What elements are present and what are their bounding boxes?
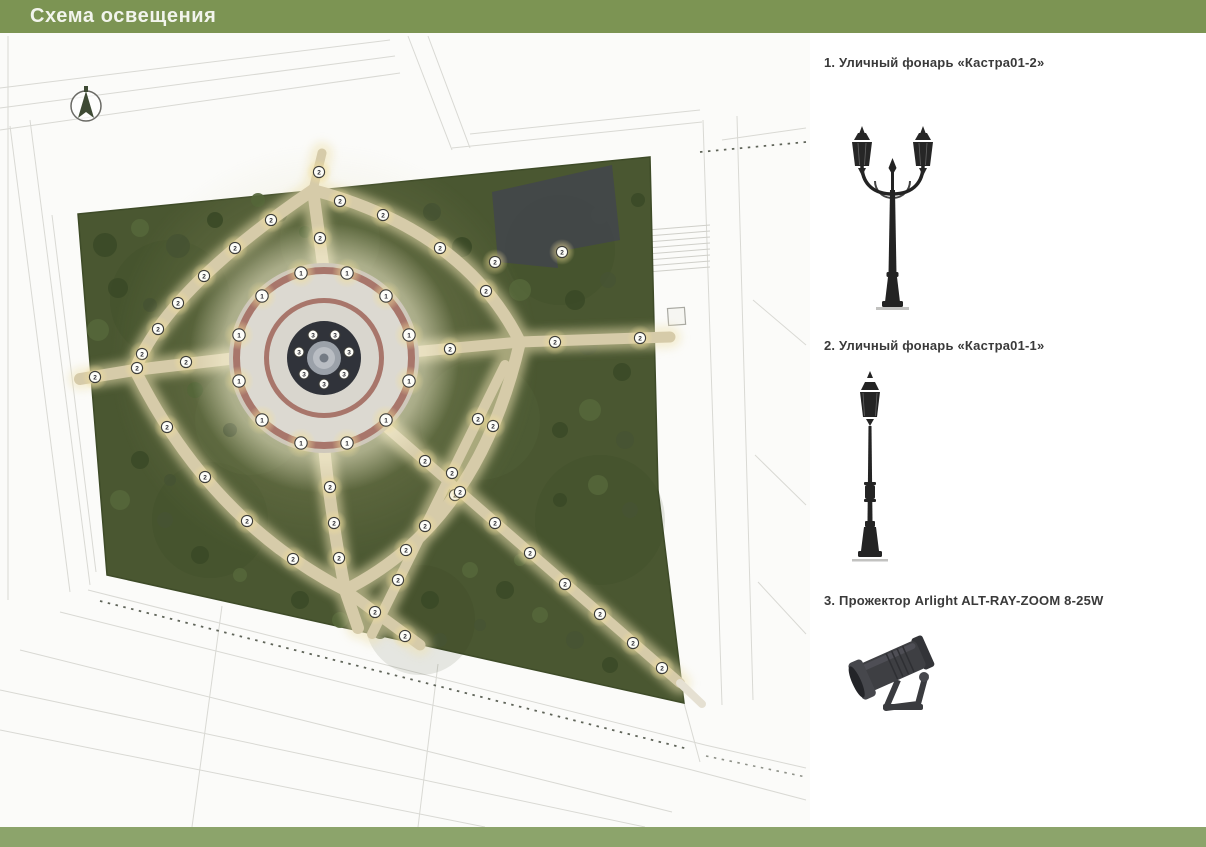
svg-text:1: 1	[299, 440, 303, 447]
lamp-marker-type1: 1	[332, 428, 362, 458]
svg-text:2: 2	[598, 611, 602, 618]
lamp-marker-type2: 2	[542, 329, 568, 355]
svg-text:2: 2	[338, 198, 342, 205]
lamp-marker-type3: 3	[330, 330, 340, 340]
lamp-marker-type2: 2	[385, 567, 411, 593]
svg-text:2: 2	[403, 633, 407, 640]
lamp-marker-type2: 2	[517, 540, 543, 566]
lamp-marker-type2: 2	[465, 406, 491, 432]
lamp-marker-type2: 2	[412, 448, 438, 474]
svg-text:1: 1	[345, 270, 349, 277]
single-street-lamp-icon	[840, 365, 1194, 575]
svg-text:2: 2	[631, 640, 635, 647]
lamp-marker-type2: 2	[124, 355, 150, 381]
lamp-marker-type3: 3	[308, 330, 318, 340]
lamp-marker-type1: 1	[371, 405, 401, 435]
lamp-marker-type2: 2	[482, 510, 508, 536]
tree	[474, 619, 486, 631]
svg-text:3: 3	[333, 332, 337, 339]
svg-text:2: 2	[476, 416, 480, 423]
tree	[131, 219, 149, 237]
lamp-marker-type2: 2	[552, 571, 578, 597]
svg-text:2: 2	[493, 259, 497, 266]
legend-item-2: 2. Уличный фонарь «Кастра01-1»	[824, 338, 1194, 575]
lamp-marker-type2: 2	[362, 599, 388, 625]
svg-text:1: 1	[237, 378, 241, 385]
lamp-marker-type2: 2	[173, 349, 199, 375]
svg-text:2: 2	[423, 458, 427, 465]
svg-text:3: 3	[322, 381, 326, 388]
legend-item-3: 3. Прожектор Arlight ALT-RAY-ZOOM 8-25W	[824, 593, 1194, 720]
svg-text:3: 3	[347, 349, 351, 356]
svg-text:2: 2	[184, 359, 188, 366]
lamp-marker-type2: 2	[427, 235, 453, 261]
lamp-marker-type2: 2	[620, 630, 646, 656]
tree	[565, 290, 585, 310]
tree	[233, 568, 247, 582]
svg-text:2: 2	[233, 245, 237, 252]
tree	[622, 502, 638, 518]
tree	[600, 272, 616, 288]
tree	[602, 657, 618, 673]
page-footer	[0, 827, 1206, 847]
lamp-marker-type2: 2	[370, 202, 396, 228]
svg-text:2: 2	[491, 423, 495, 430]
lamp-marker-type2: 2	[393, 537, 419, 563]
tree	[108, 278, 128, 298]
tree	[166, 234, 190, 258]
tree	[423, 203, 441, 221]
lamp-marker-type1: 1	[224, 320, 254, 350]
svg-text:2: 2	[203, 474, 207, 481]
lamp-marker-type2: 2	[549, 239, 575, 265]
site-plan-map: 2222222222222222222222222222222222222222…	[0, 33, 810, 827]
svg-text:2: 2	[269, 217, 273, 224]
tree	[87, 319, 109, 341]
svg-text:2: 2	[93, 374, 97, 381]
tree	[552, 422, 568, 438]
lamp-marker-type2: 2	[327, 188, 353, 214]
tree	[433, 633, 447, 647]
svg-text:3: 3	[297, 349, 301, 356]
lamp-marker-type2: 2	[307, 225, 333, 251]
svg-text:2: 2	[332, 520, 336, 527]
page-title: Схема освещения	[30, 5, 216, 28]
svg-text:2: 2	[560, 249, 564, 256]
svg-text:2: 2	[245, 518, 249, 525]
tree	[164, 474, 176, 486]
tree	[509, 279, 531, 301]
lamp-marker-type2: 2	[192, 464, 218, 490]
tree	[462, 562, 478, 578]
svg-text:2: 2	[493, 520, 497, 527]
svg-text:2: 2	[317, 169, 321, 176]
lamp-marker-type2: 2	[154, 414, 180, 440]
tree	[291, 591, 309, 609]
lamp-marker-type1: 1	[286, 258, 316, 288]
svg-text:2: 2	[563, 581, 567, 588]
lamp-marker-type1: 1	[286, 428, 316, 458]
site-plan-svg: 2222222222222222222222222222222222222222…	[0, 33, 810, 827]
svg-text:2: 2	[423, 523, 427, 530]
svg-text:2: 2	[484, 288, 488, 295]
svg-text:2: 2	[328, 484, 332, 491]
lamp-marker-type2: 2	[280, 546, 306, 572]
svg-text:2: 2	[638, 335, 642, 342]
utility-square	[667, 307, 685, 325]
svg-text:2: 2	[135, 365, 139, 372]
lamp-marker-type2: 2	[392, 623, 418, 649]
svg-text:1: 1	[237, 332, 241, 339]
lamp-marker-type2: 2	[317, 474, 343, 500]
tree	[588, 475, 608, 495]
svg-text:2: 2	[156, 326, 160, 333]
tree	[251, 193, 265, 207]
svg-text:2: 2	[660, 665, 664, 672]
lamp-marker-type3: 3	[344, 347, 354, 357]
lighting-scheme-slide: Схема освещения	[0, 0, 1206, 847]
svg-text:1: 1	[384, 293, 388, 300]
svg-text:2: 2	[438, 245, 442, 252]
svg-text:1: 1	[384, 417, 388, 424]
lamp-marker-type2: 2	[258, 207, 284, 233]
tree	[131, 451, 149, 469]
lamp-marker-type2: 2	[191, 263, 217, 289]
legend-item-label: 3. Прожектор Arlight ALT-RAY-ZOOM 8-25W	[824, 593, 1194, 608]
tree	[191, 546, 209, 564]
svg-text:1: 1	[260, 417, 264, 424]
lamp-marker-type1: 1	[394, 320, 424, 350]
legend-item-1: 1. Уличный фонарь «Кастра01-2»	[824, 55, 1194, 317]
svg-text:1: 1	[407, 378, 411, 385]
svg-text:1: 1	[260, 293, 264, 300]
svg-text:2: 2	[176, 300, 180, 307]
lamp-marker-type2: 2	[473, 278, 499, 304]
lamp-marker-type2: 2	[587, 601, 613, 627]
lamp-marker-type1: 1	[247, 405, 277, 435]
svg-text:3: 3	[302, 371, 306, 378]
svg-text:3: 3	[342, 371, 346, 378]
lamp-marker-type2: 2	[145, 316, 171, 342]
lamp-marker-type1: 1	[394, 366, 424, 396]
lamp-marker-type2: 2	[306, 159, 332, 185]
svg-text:2: 2	[450, 470, 454, 477]
tree	[143, 298, 157, 312]
tree	[93, 233, 117, 257]
tree	[616, 431, 634, 449]
tree	[421, 591, 439, 609]
lamp-marker-type2: 2	[234, 508, 260, 534]
lamp-marker-type2: 2	[222, 235, 248, 261]
legend-item-label: 1. Уличный фонарь «Кастра01-2»	[824, 55, 1194, 70]
legend-panel: 1. Уличный фонарь «Кастра01-2»	[810, 33, 1206, 827]
lamp-marker-type3: 3	[339, 369, 349, 379]
tree	[496, 581, 514, 599]
svg-text:1: 1	[345, 440, 349, 447]
tree	[566, 631, 584, 649]
svg-text:1: 1	[299, 270, 303, 277]
svg-text:2: 2	[318, 235, 322, 242]
lamp-marker-type3: 3	[299, 369, 309, 379]
floodlight-icon	[840, 620, 1194, 720]
lamp-marker-type3: 3	[319, 379, 329, 389]
lamp-marker-type1: 1	[247, 281, 277, 311]
svg-text:2: 2	[337, 555, 341, 562]
tree	[613, 363, 631, 381]
lamp-marker-type3: 3	[294, 347, 304, 357]
lamp-marker-type2: 2	[82, 364, 108, 390]
svg-text:2: 2	[165, 424, 169, 431]
svg-text:2: 2	[291, 556, 295, 563]
lamp-marker-type2: 2	[326, 545, 352, 571]
lamp-marker-type2: 2	[321, 510, 347, 536]
legend-item-label: 2. Уличный фонарь «Кастра01-1»	[824, 338, 1194, 353]
lamp-marker-type1: 1	[371, 281, 401, 311]
svg-text:2: 2	[553, 339, 557, 346]
svg-text:2: 2	[404, 547, 408, 554]
tree	[553, 493, 567, 507]
svg-text:2: 2	[396, 577, 400, 584]
tree	[532, 607, 548, 623]
svg-text:2: 2	[448, 346, 452, 353]
lamp-marker-type2: 2	[627, 325, 653, 351]
tree	[110, 490, 130, 510]
svg-text:2: 2	[381, 212, 385, 219]
page-header: Схема освещения	[0, 0, 1206, 33]
svg-text:3: 3	[311, 332, 315, 339]
lamp-marker-type2: 2	[165, 290, 191, 316]
lamp-marker-type2: 2	[649, 655, 675, 681]
lamp-marker-type2: 2	[437, 336, 463, 362]
svg-text:2: 2	[373, 609, 377, 616]
lamp-marker-type2: 2	[482, 249, 508, 275]
svg-text:2: 2	[458, 489, 462, 496]
tree	[579, 399, 601, 421]
tree	[157, 512, 173, 528]
lamp-marker-type2: 2	[412, 513, 438, 539]
lamp-marker-type1: 1	[332, 258, 362, 288]
double-street-lamp-icon	[840, 82, 1194, 317]
tree	[207, 212, 223, 228]
lamp-marker-type1: 1	[224, 366, 254, 396]
svg-text:2: 2	[528, 550, 532, 557]
svg-text:2: 2	[202, 273, 206, 280]
lamp-marker-type2: 2	[439, 460, 465, 486]
tree	[631, 193, 645, 207]
svg-text:1: 1	[407, 332, 411, 339]
